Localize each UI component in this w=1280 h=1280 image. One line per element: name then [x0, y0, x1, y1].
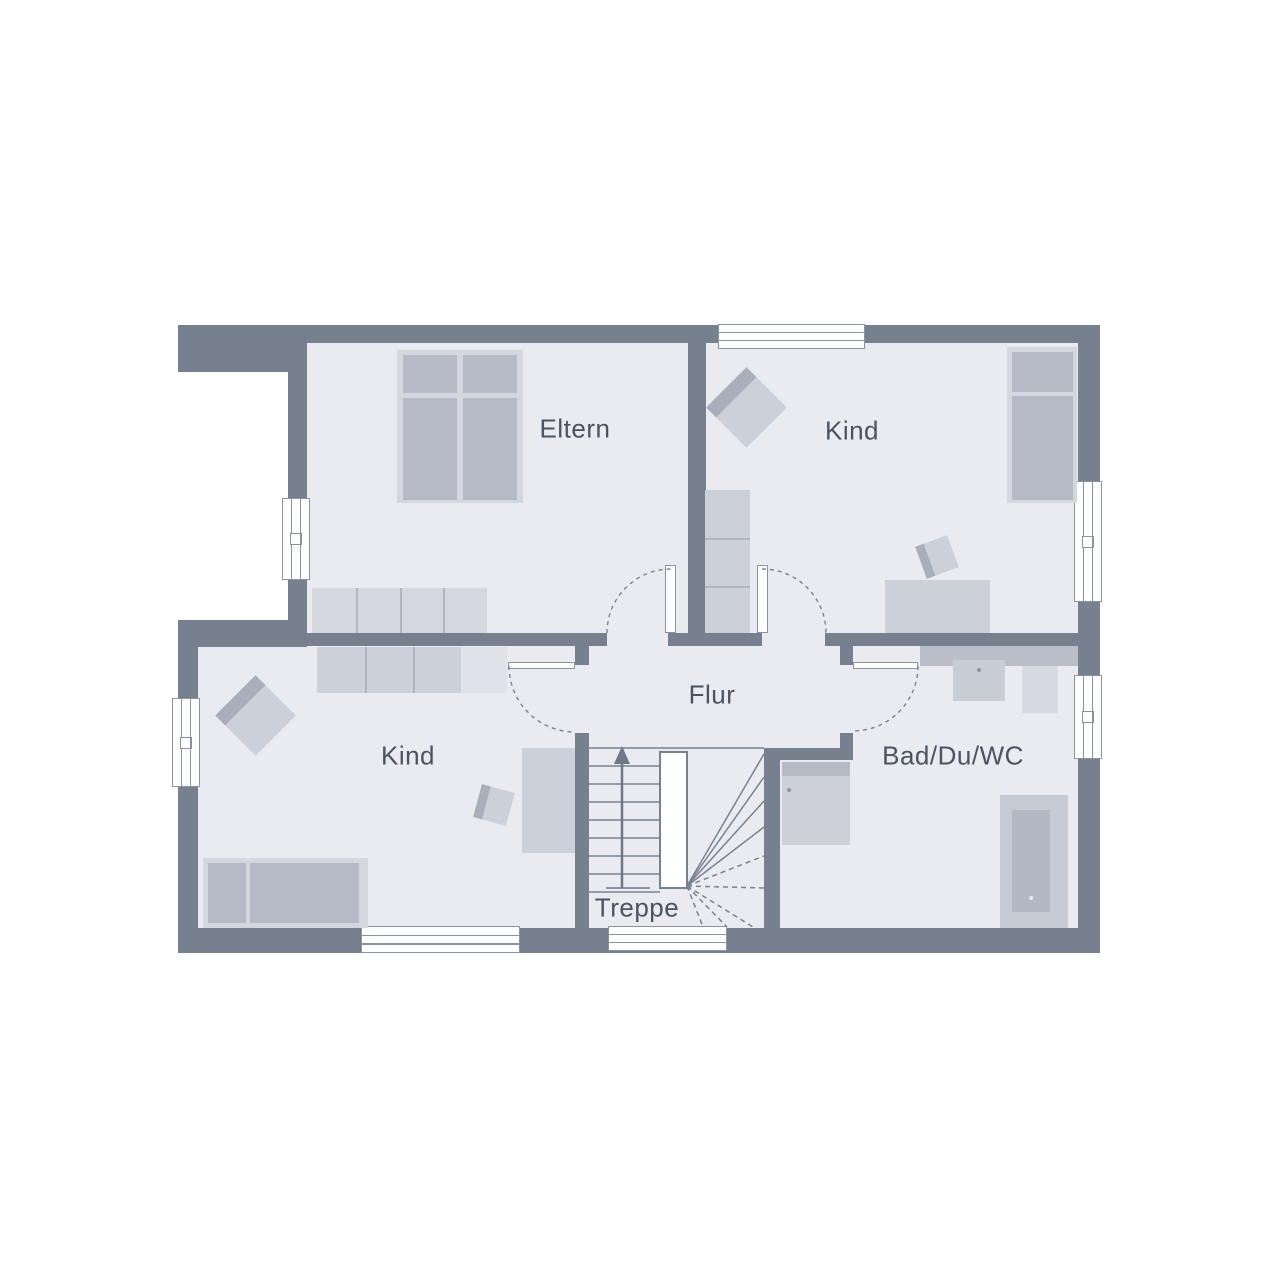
washing-machine [782, 762, 850, 845]
wardrobe-kind [317, 647, 461, 693]
wall-interior-right [825, 633, 1078, 646]
wall-top [178, 325, 1100, 343]
washbasin [953, 660, 1005, 701]
window-mark [1082, 711, 1094, 723]
wall-middle-vertical [688, 343, 706, 633]
door-leaf-bad [853, 662, 918, 669]
door-leaf-kind-bottom [508, 662, 575, 669]
bed-pillow [403, 355, 457, 393]
window-bad-right [1074, 675, 1102, 759]
bed-mattress [463, 398, 517, 500]
window-bottom-left [361, 926, 520, 953]
outside-cutout [178, 372, 288, 620]
shelf-chest [705, 490, 750, 633]
bed-pillow [208, 863, 246, 923]
door-leaf-kind-top [757, 565, 768, 633]
wall-left-upper [288, 343, 307, 633]
window-bottom-stair [608, 926, 727, 951]
wall-right [1078, 325, 1100, 953]
wall-stair-left [575, 733, 589, 928]
bed-pillow [1012, 352, 1073, 392]
bed-mattress [403, 398, 457, 500]
wall-middle-stub [668, 633, 762, 646]
desk [522, 748, 575, 853]
room-label-eltern: Eltern [540, 414, 611, 445]
window-eltern-left [282, 498, 310, 580]
room-label-bad: Bad/Du/WC [882, 741, 1024, 772]
wall-bad-jamb [840, 643, 853, 665]
wall-bad-piece [840, 733, 853, 760]
window-mark [180, 737, 192, 749]
window-top [718, 324, 865, 349]
toilet [1022, 666, 1058, 713]
bed-mattress [250, 863, 359, 923]
wall-stair-left-jamb [575, 645, 589, 665]
wall-stair-right [764, 748, 780, 928]
wall-top-left-stub [178, 343, 288, 372]
window-kind-top-right [1074, 481, 1102, 602]
room-label-flur: Flur [689, 680, 736, 711]
window-mark [1082, 536, 1094, 548]
window-mark [290, 533, 302, 545]
room-label-treppe: Treppe [595, 893, 679, 924]
door-leaf-eltern [665, 565, 676, 633]
wall-interior-left [198, 633, 607, 646]
bathtub [1000, 795, 1068, 928]
wardrobe-eltern [312, 588, 487, 633]
room-label-kind-top: Kind [825, 416, 879, 447]
bed-pillow [463, 355, 517, 393]
floor-plan-canvas: Eltern Kind Kind Flur Bad/Du/WC Treppe [0, 0, 1280, 1280]
room-label-kind-bottom: Kind [381, 741, 435, 772]
desk [885, 580, 990, 633]
wardrobe-open-cell [461, 647, 507, 693]
bed-mattress [1012, 396, 1073, 500]
window-kind-bottom-left [172, 698, 200, 787]
